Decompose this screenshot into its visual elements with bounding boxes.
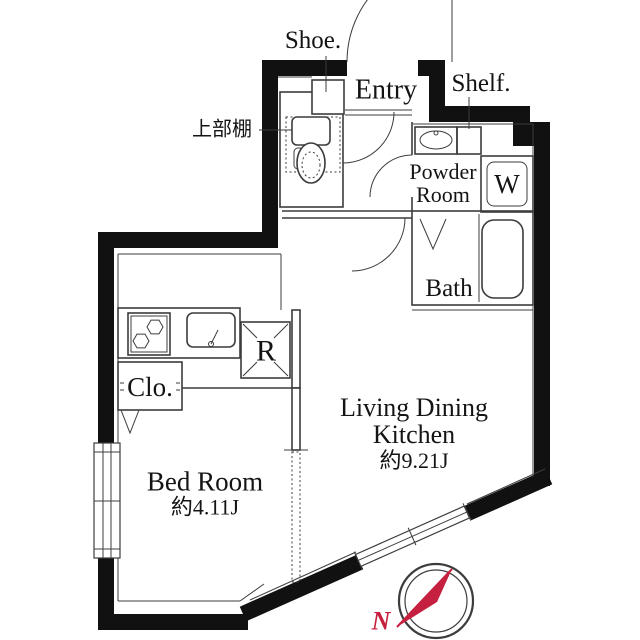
shelf-box (457, 127, 481, 154)
toilet-icon (292, 117, 330, 183)
bedroom-label: Bed Room 約4.11J (147, 467, 263, 518)
toilet-door-swing (343, 112, 394, 163)
powder-room-door-swing (370, 155, 412, 197)
powder-room-label-line2: Room (409, 183, 476, 206)
ldk-label-line1: Living Dining (340, 394, 488, 421)
diagonal-wall-left (243, 562, 360, 614)
ldk-door-swing (352, 218, 405, 271)
stove-icon (128, 313, 170, 355)
shelf-label: Shelf. (451, 71, 510, 97)
entry-label: Entry (355, 75, 417, 104)
diagonal-window (354, 503, 470, 569)
closet-door-icon (121, 410, 139, 433)
floor-plan-drawing (0, 0, 640, 640)
bathtub-icon (482, 220, 523, 298)
refrigerator-label: R (256, 335, 276, 367)
washing-machine-label: W (494, 170, 519, 198)
upper-shelf-label: 上部棚 (192, 120, 252, 141)
washbasin-icon (420, 131, 452, 149)
bath-label: Bath (425, 276, 472, 302)
ldk-label-line2: Kitchen (340, 421, 488, 448)
bedroom-window (94, 443, 120, 558)
bedroom-label-name: Bed Room (147, 467, 263, 495)
entry-door-swing (347, 0, 452, 62)
compass-icon (397, 564, 473, 638)
kitchen-side-wall (292, 310, 300, 388)
powder-room-label: Powder Room (409, 160, 476, 206)
shoe-cabinet-label: Shoe. (285, 28, 341, 54)
ldk-area-label: 約9.21J (340, 449, 488, 472)
shoe-cabinet-box (312, 80, 344, 114)
sliding-door (292, 452, 300, 582)
diagonal-wall-right (468, 477, 549, 513)
compass-north-label: N (372, 607, 391, 634)
bedroom-area-label: 約4.11J (147, 496, 263, 519)
closet-label: Clo. (125, 373, 175, 401)
powder-room-label-line1: Powder (409, 160, 476, 183)
kitchen-sink-icon (187, 313, 235, 347)
floor-plan: Shoe. Entry Shelf. 上部棚 Powder Room W Bat… (0, 0, 640, 640)
ldk-label: Living Dining Kitchen 約9.21J (340, 394, 488, 472)
bath-door-icon (420, 219, 446, 249)
